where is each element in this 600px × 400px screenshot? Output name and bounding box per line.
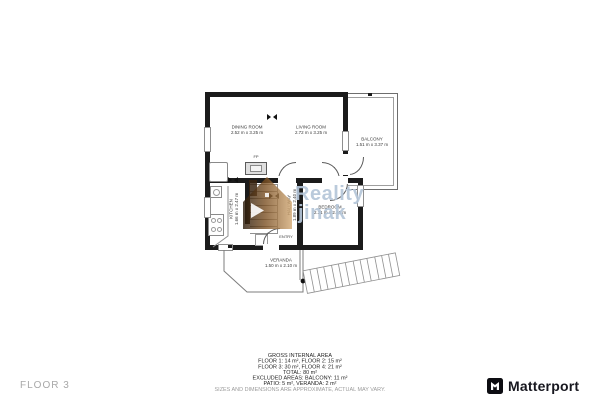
floorplan-page: DINING ROOM 2.52 m x 3.25 m LIVING ROOM … bbox=[0, 0, 600, 400]
watermark-text-line2: jinak bbox=[298, 202, 346, 225]
